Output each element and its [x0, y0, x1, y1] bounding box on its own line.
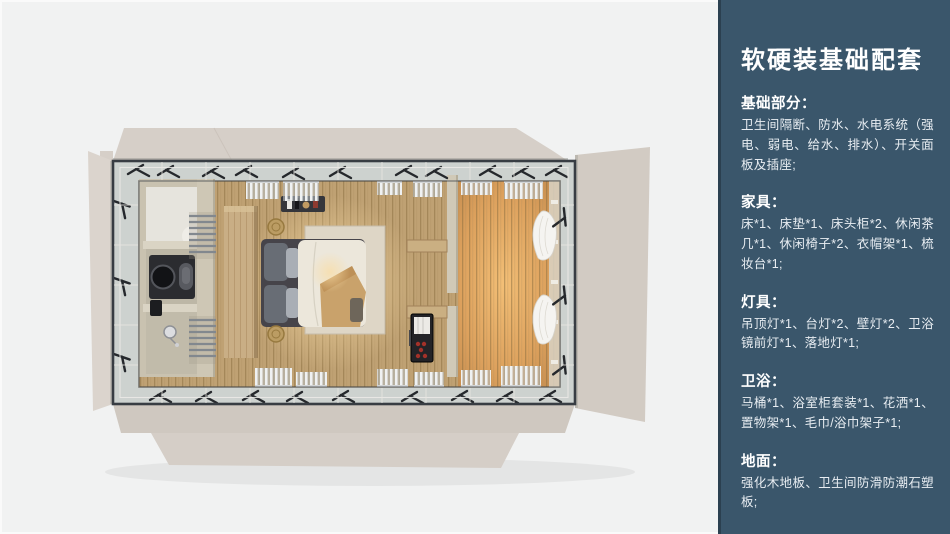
- bathroom-unit: [139, 179, 216, 377]
- section-heading: 灯具：: [741, 291, 934, 312]
- section-body: 床*1、床垫*1、床头柜*2、休闲茶几*1、休闲椅子*2、衣帽架*1、梳妆台*1…: [741, 215, 934, 274]
- bed: [261, 239, 366, 327]
- section-body: 强化木地板、卫生间防滑防潮石塑板;: [741, 474, 934, 514]
- shelf-board: [407, 240, 447, 252]
- nightstand-basket: [268, 219, 284, 235]
- curtain: [533, 295, 556, 344]
- slide-canvas: 软硬装基础配套 基础部分： 卫生间隔断、防水、水电系统（强电、弱电、给水、排水）…: [0, 0, 950, 534]
- panel-section-sanitary: 卫浴： 马桶*1、浴室柜套装*1、花洒*1、置物架*1、毛巾/浴巾架子*1;: [741, 370, 934, 434]
- section-heading: 基础部分：: [741, 92, 934, 113]
- nightstand-basket: [268, 326, 284, 342]
- towel-rack: [189, 316, 216, 364]
- section-body: 马桶*1、浴室柜套装*1、花洒*1、置物架*1、毛巾/浴巾架子*1;: [741, 394, 934, 434]
- panel-section-furniture: 家具： 床*1、床垫*1、床头柜*2、休闲茶几*1、休闲椅子*2、衣帽架*1、梳…: [741, 191, 934, 274]
- panel-section-flooring: 地面： 强化木地板、卫生间防滑防潮石塑板;: [741, 450, 934, 514]
- section-body: 吊顶灯*1、台灯*2、壁灯*2、卫浴镜前灯*1、落地灯*1;: [741, 315, 934, 355]
- section-heading: 家具：: [741, 191, 934, 212]
- towel-rack: [189, 212, 216, 259]
- floorplan-render: [0, 0, 718, 534]
- floorplan-svg: [0, 0, 718, 534]
- section-body: 卫生间隔断、防水、水电系统（强电、弱电、给水、排水）、开关面板及插座;: [741, 116, 934, 175]
- minibar-cabinet: [409, 314, 433, 362]
- panel-section-basics: 基础部分： 卫生间隔断、防水、水电系统（强电、弱电、给水、排水）、开关面板及插座…: [741, 92, 934, 175]
- headboard-panel: [224, 206, 258, 358]
- curtain: [533, 211, 556, 260]
- section-heading: 地面：: [741, 450, 934, 471]
- section-heading: 卫浴：: [741, 370, 934, 391]
- info-panel: 软硬装基础配套 基础部分： 卫生间隔断、防水、水电系统（强电、弱电、给水、排水）…: [718, 0, 950, 534]
- panel-section-lighting: 灯具： 吊顶灯*1、台灯*2、壁灯*2、卫浴镜前灯*1、落地灯*1;: [741, 291, 934, 355]
- panel-title: 软硬装基础配套: [741, 48, 934, 73]
